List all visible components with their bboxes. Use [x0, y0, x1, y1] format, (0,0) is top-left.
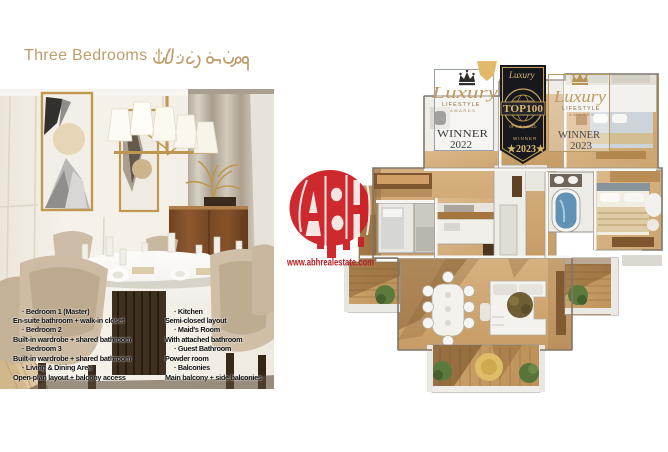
svg-text:AWARDS: AWARDS [450, 108, 476, 113]
svg-text:www.abhrealestate.com: www.abhrealestate.com [286, 258, 374, 269]
svg-text:WINNER: WINNER [513, 136, 537, 141]
svg-text:OF THE WORLD: OF THE WORLD [509, 125, 537, 129]
svg-text:2022: 2022 [450, 139, 472, 151]
svg-text:Luxury: Luxury [553, 87, 607, 106]
svg-text:TOP100: TOP100 [503, 103, 544, 115]
svg-text:Luxury: Luxury [508, 70, 535, 80]
svg-text:AWARDS: AWARDS [569, 112, 595, 117]
svg-text:Luxury: Luxury [431, 83, 499, 102]
svg-text:★2023★: ★2023★ [507, 144, 545, 155]
svg-text:2023: 2023 [570, 140, 593, 152]
